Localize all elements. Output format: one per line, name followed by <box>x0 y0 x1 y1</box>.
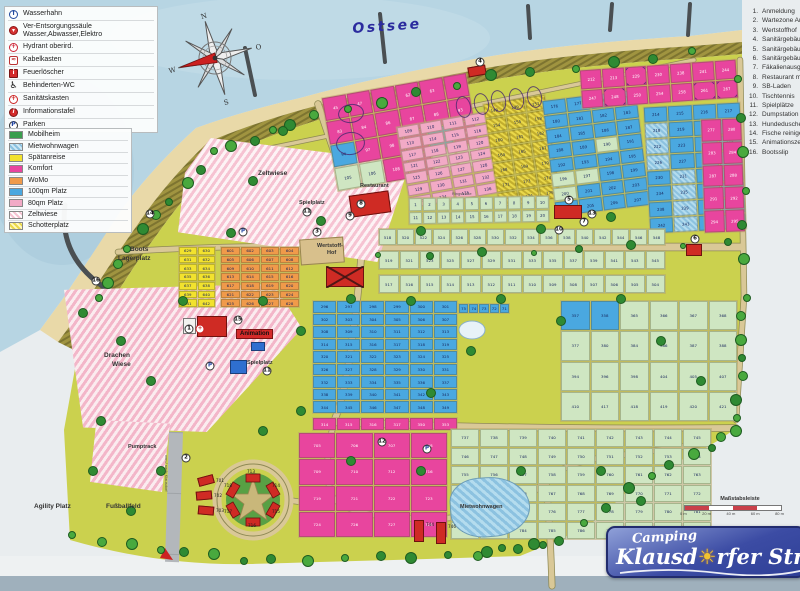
plot-314: 314 <box>313 418 336 430</box>
plot-347: 347 <box>385 401 408 413</box>
plot-182: 182 <box>591 107 615 123</box>
plot-709: 709 <box>299 459 335 484</box>
poi-badge-12: 12 <box>378 438 387 447</box>
plot-320: 320 <box>313 351 336 363</box>
map-label: Lagerplatz <box>118 255 151 262</box>
poi-label: Fäkalienausguss <box>762 64 800 72</box>
tree-icon <box>606 212 616 222</box>
plot-241: 241 <box>692 61 715 81</box>
tree-icon <box>734 75 742 83</box>
zone-mobil-row-513: 5175165155145135125115105095085075065055… <box>378 274 666 294</box>
plot-215: 215 <box>668 105 692 121</box>
tree-icon <box>648 54 658 64</box>
poi-badge-14: 14 <box>146 210 155 219</box>
plot-410: 410 <box>561 392 590 421</box>
poi-label: Bootsslip <box>762 149 788 157</box>
poi-badge-10: 10 <box>555 226 564 235</box>
tree-icon <box>269 126 277 134</box>
plot-298: 298 <box>361 301 384 313</box>
poi-number: 16. <box>744 149 758 157</box>
entry-road <box>172 432 176 562</box>
map-label: Hof <box>327 250 336 256</box>
color-legend-label: Mietwohnwagen <box>28 143 79 151</box>
plot-622: 622 <box>241 291 260 299</box>
plot-724: 724 <box>299 512 335 537</box>
poi-number: 5. <box>744 46 758 54</box>
poi-number: 4. <box>744 36 758 44</box>
tree-icon <box>248 176 258 186</box>
tree-icon <box>137 223 149 235</box>
plot-521: 521 <box>400 251 420 269</box>
plot-74: 74 <box>469 304 478 313</box>
plot-618: 618 <box>241 282 260 290</box>
map-label: 718 <box>224 484 232 488</box>
plot-196: 196 <box>551 171 575 187</box>
plot-332: 332 <box>313 376 336 388</box>
poi-list-row: 4.Sanitärgebäude <box>744 36 800 44</box>
tree-icon <box>708 444 716 452</box>
tree-icon <box>656 336 666 346</box>
plot-250: 250 <box>626 85 649 105</box>
map-label: Ringstraße <box>452 192 472 196</box>
scale-ticks: 0 m20 m40 m60 m80 m <box>680 512 784 516</box>
building-label: 746 <box>448 524 456 529</box>
poi-label: Spielplätze <box>762 102 794 110</box>
color-chip <box>9 154 23 162</box>
poi-list-row: 9.SB-Laden <box>744 83 800 91</box>
tree-icon <box>735 334 747 346</box>
compass-s: S <box>223 98 230 107</box>
plot-72: 72 <box>490 304 499 313</box>
poi-label: Tischtennis <box>762 93 795 101</box>
plot-721: 721 <box>336 486 372 511</box>
poi-number: 12. <box>744 111 758 119</box>
scale-bar: Maßstabsleiste 0 m20 m40 m60 m80 m <box>684 497 796 516</box>
plot-626: 626 <box>241 299 260 307</box>
plot-299: 299 <box>385 301 408 313</box>
poi-number: 2. <box>744 17 758 25</box>
tree-icon <box>116 336 126 346</box>
plot-314: 314 <box>313 339 336 351</box>
plot-229: 229 <box>625 66 648 86</box>
legend-row: +Sanitätskasten <box>8 93 154 106</box>
tree-icon <box>165 198 173 206</box>
tree-icon <box>724 238 732 246</box>
plot-291: 291 <box>703 187 723 209</box>
map-label: Restaurant <box>360 183 389 189</box>
legend-row: +Hydrant oberird. <box>8 41 154 54</box>
poi-list-row: 12.Dumpstation für Womo <box>744 111 800 119</box>
poi-label: Sanitärgebäude <box>762 55 800 63</box>
plot-637: 637 <box>179 282 197 290</box>
map-label: Mietwohnwagen <box>460 504 502 510</box>
tree-icon <box>608 56 620 68</box>
plot-15: 15 <box>465 211 478 224</box>
plot-367: 367 <box>679 301 708 330</box>
tree-icon <box>375 252 381 258</box>
plot-636: 636 <box>198 273 216 281</box>
map-label: 717 <box>224 510 232 514</box>
plot-508: 508 <box>564 275 584 293</box>
poi-number: 3. <box>744 27 758 35</box>
scale-label: Maßstabsleiste <box>684 497 796 503</box>
plot-287: 287 <box>703 165 723 187</box>
plot-642: 642 <box>198 299 216 307</box>
poi-badge-11: 11 <box>263 367 272 376</box>
poi-numbered-list: 1.Anmeldung2.Wartezone Anreise3.Wertstof… <box>744 8 800 158</box>
plot-767: 767 <box>538 485 566 503</box>
compass-e: O <box>255 43 263 52</box>
plot-535: 535 <box>543 251 563 269</box>
playground-equipment-2 <box>251 342 265 351</box>
zone-komfort-center-row: 314315316317350353 <box>312 417 458 431</box>
plot-185: 185 <box>569 125 593 141</box>
plot-105: 105 <box>334 164 361 190</box>
plot-759: 759 <box>567 466 595 484</box>
plot-769: 769 <box>596 485 624 503</box>
color-chip <box>9 222 23 230</box>
tree-icon <box>738 354 746 362</box>
plot-635: 635 <box>179 273 197 281</box>
plot-319: 319 <box>434 339 457 351</box>
plot-338: 338 <box>313 389 336 401</box>
compass-w: W <box>168 65 178 75</box>
plot-609: 609 <box>221 264 240 272</box>
plot-507: 507 <box>584 275 604 293</box>
plot-743: 743 <box>625 429 653 447</box>
plot-726: 726 <box>336 512 372 537</box>
plot-18: 18 <box>508 210 521 223</box>
color-chip <box>9 177 23 185</box>
legend-row: TWasserhahn <box>8 8 154 21</box>
tree-icon <box>316 216 326 226</box>
plot-10: 10 <box>536 196 549 209</box>
supply-column-icon: ▾ <box>9 26 18 35</box>
plot-630: 630 <box>198 247 216 255</box>
plot-226: 226 <box>646 154 670 170</box>
tree-icon <box>513 544 523 554</box>
plot-749: 749 <box>538 448 566 466</box>
workshop-building-crossed <box>326 267 364 287</box>
compass-n: N <box>200 12 208 21</box>
plot-234: 234 <box>648 186 672 202</box>
plot-207: 207 <box>625 191 649 207</box>
tree-icon <box>716 432 726 442</box>
campground-map-photo: 6296306316326336346356366376386396406416… <box>0 0 800 591</box>
poi-badge-8: 8 <box>357 200 366 209</box>
plot-180: 180 <box>544 113 568 129</box>
plot-199: 199 <box>622 162 646 178</box>
poi-list-row: 1.Anmeldung <box>744 8 800 16</box>
tree-icon <box>623 482 635 494</box>
plot-540: 540 <box>576 229 593 245</box>
plot-738: 738 <box>480 429 508 447</box>
plot-746: 746 <box>451 448 479 466</box>
plot-634: 634 <box>198 264 216 272</box>
tree-icon <box>737 220 747 230</box>
tree-icon <box>477 247 487 257</box>
tree-icon <box>616 294 626 304</box>
plot-288: 288 <box>723 164 743 186</box>
plot-722: 722 <box>374 486 410 511</box>
plot-719: 719 <box>299 486 335 511</box>
color-legend-row: Zeltwiese <box>8 210 128 221</box>
plot-420: 420 <box>679 392 708 421</box>
plot-339: 339 <box>337 389 360 401</box>
color-legend-row: Mietwohnwagen <box>8 141 128 152</box>
plot-386: 386 <box>650 331 679 360</box>
plot-322: 322 <box>361 351 384 363</box>
plot-384: 384 <box>620 331 649 360</box>
plot-324: 324 <box>410 351 433 363</box>
tree-icon <box>250 136 260 146</box>
color-legend: MobilheimMietwohnwagenSpätanreiseKomfort… <box>4 128 132 233</box>
tree-icon <box>344 105 352 113</box>
plot-318: 318 <box>410 339 433 351</box>
plot-306: 306 <box>410 314 433 326</box>
plot-763: 763 <box>683 466 711 484</box>
tree-icon <box>226 228 236 238</box>
plot-638: 638 <box>198 282 216 290</box>
tree-icon <box>696 376 706 386</box>
plot-17: 17 <box>494 210 507 223</box>
color-legend-label: Schotterplatz <box>28 222 69 230</box>
plot-83: 83 <box>326 118 353 144</box>
plot-631: 631 <box>179 256 197 264</box>
plot-198: 198 <box>598 165 622 181</box>
plot-305: 305 <box>385 314 408 326</box>
poi-badge-P: P <box>206 362 215 371</box>
plot-188: 188 <box>548 142 572 158</box>
tree-icon <box>68 531 76 539</box>
tree-icon <box>525 67 535 77</box>
plot-239: 239 <box>673 200 697 216</box>
plot-261: 261 <box>693 81 716 101</box>
plot-511: 511 <box>502 275 522 293</box>
wheelchair-icon: ♿ <box>9 82 18 91</box>
plot-202: 202 <box>600 180 624 196</box>
plot-238: 238 <box>669 63 692 83</box>
plot-227: 227 <box>670 153 694 169</box>
plot-615: 615 <box>261 273 280 281</box>
tree-icon <box>688 47 696 55</box>
plot-94: 94 <box>330 141 357 167</box>
plot-75: 75 <box>459 304 468 313</box>
plot-619: 619 <box>261 282 280 290</box>
map-label: 713 <box>247 470 255 474</box>
poi-list-row: 14.Fische reinigen <box>744 130 800 138</box>
plot-231: 231 <box>671 169 695 185</box>
color-chip <box>9 143 23 151</box>
map-label: Spielplatz <box>247 360 273 366</box>
plot-741: 741 <box>567 429 595 447</box>
poi-badge-P: P <box>239 228 248 237</box>
plot-243: 243 <box>674 216 698 232</box>
poi-number: 11. <box>744 102 758 110</box>
plot-629: 629 <box>179 247 197 255</box>
plot-315: 315 <box>337 339 360 351</box>
map-label: Agility Platz <box>34 503 71 510</box>
tree-icon <box>444 551 452 559</box>
plot-302: 302 <box>313 314 336 326</box>
plot-745: 745 <box>683 429 711 447</box>
plot-296: 296 <box>313 301 336 313</box>
zone-blue-small-row: 7574737271 <box>458 303 510 314</box>
plot-624: 624 <box>280 291 299 299</box>
plot-47: 47 <box>346 90 373 116</box>
plot-219: 219 <box>669 121 693 137</box>
plot-614: 614 <box>241 273 260 281</box>
plot-317: 317 <box>385 339 408 351</box>
plot-329: 329 <box>385 364 408 376</box>
plot-539: 539 <box>584 251 604 269</box>
poi-number: 7. <box>744 64 758 72</box>
plot-617: 617 <box>221 282 240 290</box>
plot-417: 417 <box>591 392 620 421</box>
map-label: Animation <box>236 329 273 339</box>
zone-mobil-row-1-20: 1234567891011121314151617181920 <box>408 195 550 225</box>
plot-254: 254 <box>648 84 671 104</box>
plot-328: 328 <box>361 364 384 376</box>
plot-727: 727 <box>374 512 410 537</box>
legend-row: ♿Behinderten-WC <box>8 80 154 93</box>
plot-304: 304 <box>361 314 384 326</box>
color-legend-label: 80qm Platz <box>28 200 63 208</box>
tree-icon <box>481 546 493 558</box>
rental-house <box>198 505 215 515</box>
color-legend-row: 80qm Platz <box>8 198 128 209</box>
tree-icon <box>78 308 88 318</box>
plot-528: 528 <box>469 229 486 245</box>
poi-label: Wertstoffhof <box>762 27 797 35</box>
info-board-icon: i <box>9 108 18 117</box>
tree-icon <box>453 82 461 90</box>
plot-20: 20 <box>536 209 549 222</box>
plot-346: 346 <box>361 401 384 413</box>
plot-509: 509 <box>543 275 563 293</box>
plot-712: 712 <box>374 459 410 484</box>
poi-badge-2: 2 <box>182 454 191 463</box>
plot-350: 350 <box>410 418 433 430</box>
color-legend-label: Spätanreise <box>28 154 65 162</box>
campground-logo: Camping Klausd☀rfer Strand <box>606 526 800 578</box>
plot-176: 176 <box>542 98 566 114</box>
plot-358: 358 <box>591 301 620 330</box>
color-chip <box>9 211 23 219</box>
plot-345: 345 <box>337 401 360 413</box>
plot-606: 606 <box>241 256 260 264</box>
building-label: 703 <box>216 508 224 513</box>
plot-212: 212 <box>580 69 603 89</box>
plot-335: 335 <box>385 376 408 388</box>
plot-4: 4 <box>451 197 464 210</box>
plot-780: 780 <box>654 503 682 521</box>
poi-number: 6. <box>744 55 758 63</box>
poi-list-row: 11.Spielplätze <box>744 102 800 110</box>
plot-344: 344 <box>313 401 336 413</box>
poi-badge-7: 7 <box>580 218 589 227</box>
scale-tick: 0 m <box>680 512 687 516</box>
plot-740: 740 <box>538 429 566 447</box>
plot-341: 341 <box>385 389 408 401</box>
plot-230: 230 <box>647 170 671 186</box>
plot-309: 309 <box>337 326 360 338</box>
color-legend-label: WoMo <box>28 177 48 185</box>
plot-377: 377 <box>561 331 590 360</box>
plot-628: 628 <box>280 299 299 307</box>
poi-list-row: 5.Sanitärgebäude <box>744 46 800 54</box>
poi-label: SB-Laden <box>762 83 791 91</box>
plot-621: 621 <box>221 291 240 299</box>
plot-525: 525 <box>441 251 461 269</box>
poi-list-row: 3.Wertstoffhof <box>744 27 800 35</box>
map-label: Pumptrack <box>128 444 156 450</box>
playground-equipment <box>230 360 247 374</box>
plot-605: 605 <box>221 256 240 264</box>
plot-751: 751 <box>596 448 624 466</box>
plot-2: 2 <box>423 198 436 211</box>
color-legend-row: WoMo <box>8 176 128 187</box>
poi-label: Sanitärgebäude <box>762 46 800 54</box>
plot-294: 294 <box>704 210 724 232</box>
tree-icon <box>346 456 356 466</box>
wertstoffhof-yard <box>299 236 345 265</box>
map-label: Zeltwiese <box>258 170 287 177</box>
tree-icon <box>680 243 686 249</box>
plot-316: 316 <box>361 418 384 430</box>
tree-icon <box>536 224 546 234</box>
plot-777: 777 <box>567 503 595 521</box>
plot-190: 190 <box>595 136 619 152</box>
tree-icon <box>572 65 580 73</box>
tree-icon <box>580 519 588 527</box>
plot-193: 193 <box>573 154 597 170</box>
map-label: Spielplatz <box>299 200 325 206</box>
poi-label: Restaurant mit Imbiss <box>762 74 800 82</box>
plot-330: 330 <box>410 364 433 376</box>
logo-underline <box>608 528 800 578</box>
tree-icon <box>416 226 426 236</box>
plot-368: 368 <box>709 301 738 330</box>
plot-603: 603 <box>261 247 280 255</box>
plot-71: 71 <box>500 304 509 313</box>
plot-189: 189 <box>571 139 595 155</box>
plot-514: 514 <box>441 275 461 293</box>
tree-icon <box>296 326 306 336</box>
plot-520: 520 <box>397 229 414 245</box>
plot-513: 513 <box>461 275 481 293</box>
poi-label: Fische reinigen <box>762 130 800 138</box>
plot-612: 612 <box>280 264 299 272</box>
poi-number: 14. <box>744 130 758 138</box>
plot-758: 758 <box>538 466 566 484</box>
tree-icon <box>730 425 742 437</box>
rental-house <box>436 522 446 544</box>
color-chip <box>9 165 23 173</box>
plot-705: 705 <box>299 433 335 458</box>
pumptrack-area <box>90 420 170 492</box>
color-legend-row: Mobilheim <box>8 130 128 141</box>
hydrant-icon: + <box>9 43 18 52</box>
map-label: 714 <box>272 484 280 488</box>
rental-house <box>196 490 213 500</box>
legend-row: iInformationstafel <box>8 106 154 119</box>
plot-750: 750 <box>567 448 595 466</box>
plot-316: 316 <box>361 339 384 351</box>
tree-icon <box>225 140 237 152</box>
legend-row: ▾Ver-Entsorgungssäule Wasser,Abwasser,El… <box>8 21 154 41</box>
poi-number: 13. <box>744 121 758 129</box>
